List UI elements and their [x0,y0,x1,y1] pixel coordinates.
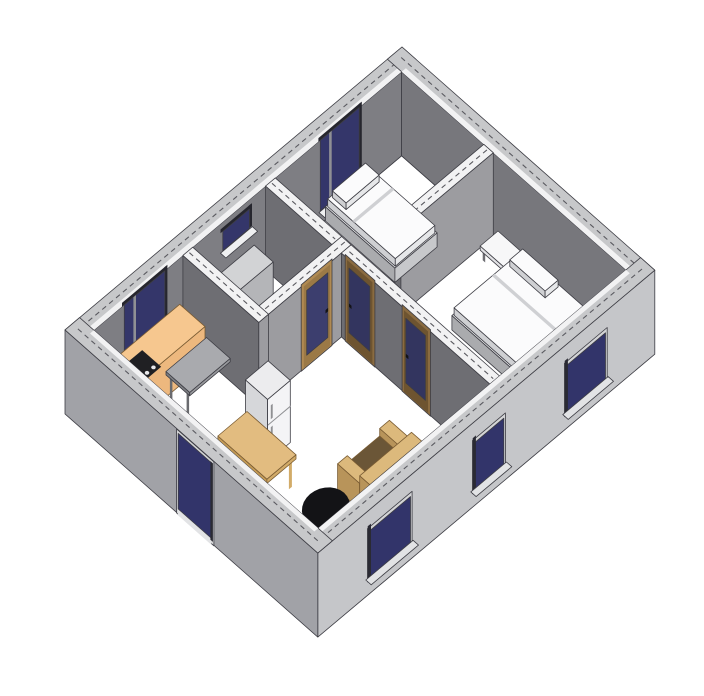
cooktop-knob-1 [151,366,156,370]
balcony-door-reveal [210,461,213,542]
living-window-1-reveal [473,435,476,494]
fridge-handle-upper [271,404,273,420]
living-window-2-reveal [368,524,371,583]
house-model-canvas [0,0,704,696]
floorplan-3d-view [0,0,704,696]
bedroom1-window-mullion [329,131,332,204]
bedroom2-window-reveal [565,358,568,417]
